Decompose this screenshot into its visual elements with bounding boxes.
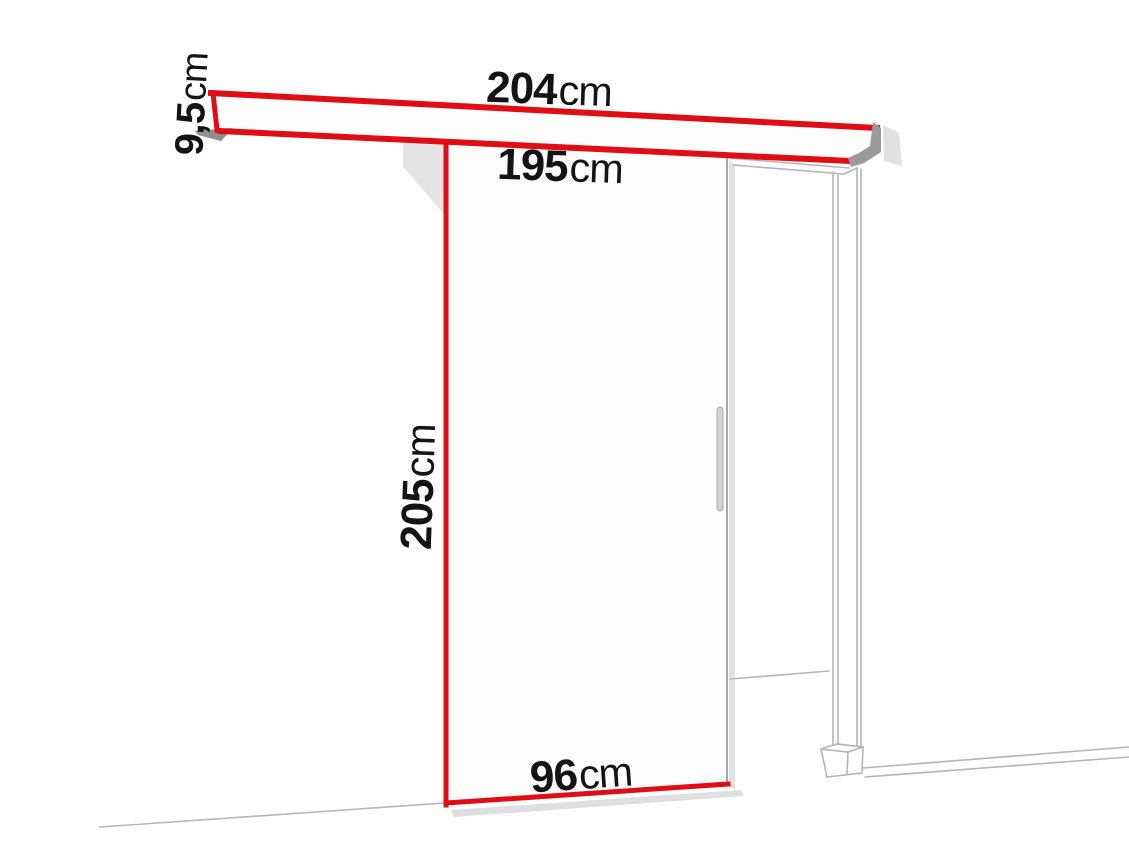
passage-width-unit: cm	[569, 144, 624, 192]
sliding-door-dimension-diagram: 204cm 9,5cm 195cm 205cm 96cm	[0, 0, 1129, 847]
rail-cap-shadow	[883, 125, 902, 166]
rail-length-unit: cm	[558, 67, 613, 115]
rail-height-label: 9,5cm	[169, 52, 214, 157]
passage-width-label: 195cm	[496, 143, 623, 191]
door-surface	[446, 140, 727, 805]
door-height-value: 205	[392, 478, 443, 550]
baseboard-line-bottom	[865, 757, 1129, 777]
door-height-label: 205cm	[395, 423, 443, 550]
frame-plinth-front-edge	[847, 752, 848, 775]
door-width-unit: cm	[577, 748, 633, 798]
door-handle	[717, 407, 723, 511]
rail-height-value: 9,5	[167, 102, 214, 157]
passage-width-value: 195	[496, 140, 568, 191]
door-panel	[446, 140, 744, 817]
door-width-value: 96	[528, 750, 578, 802]
baseboard-line-top	[863, 747, 1129, 768]
opening-floor-line	[730, 671, 829, 679]
door-height-unit: cm	[396, 423, 444, 478]
door-width-label: 96cm	[529, 749, 634, 800]
rail-length-value: 204	[485, 63, 557, 114]
rail-length-label: 204cm	[485, 66, 612, 114]
floor-line-left	[100, 803, 445, 827]
rail-height-unit: cm	[171, 52, 215, 102]
wall-shadow-under-rail	[403, 141, 444, 214]
door-right-shadow	[729, 160, 735, 790]
